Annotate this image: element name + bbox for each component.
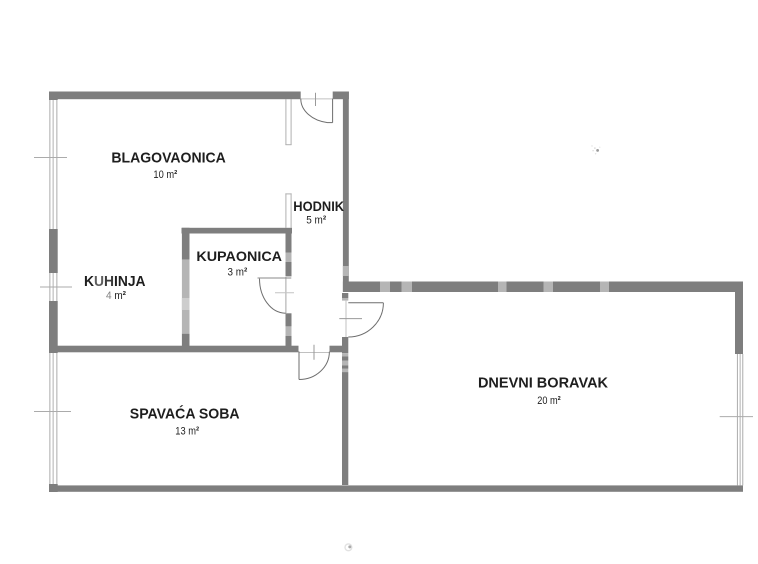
svg-text:3 m²: 3 m² xyxy=(228,267,248,279)
svg-text:HODNIK: HODNIK xyxy=(293,198,344,214)
svg-text:BLAGOVAONICA: BLAGOVAONICA xyxy=(111,151,226,167)
svg-text:KUHINJA: KUHINJA xyxy=(84,273,146,290)
svg-text:SPAVAĆA SOBA: SPAVAĆA SOBA xyxy=(130,405,240,423)
svg-text:DNEVNI BORAVAK: DNEVNI BORAVAK xyxy=(478,374,608,391)
svg-text:20 m²: 20 m² xyxy=(537,395,561,407)
svg-text:5 m²: 5 m² xyxy=(306,215,326,227)
svg-text:4 m²: 4 m² xyxy=(106,290,126,302)
svg-text:13 m²: 13 m² xyxy=(175,426,199,438)
svg-text:10 m²: 10 m² xyxy=(153,169,177,181)
svg-text:KUPAONICA: KUPAONICA xyxy=(196,249,282,264)
